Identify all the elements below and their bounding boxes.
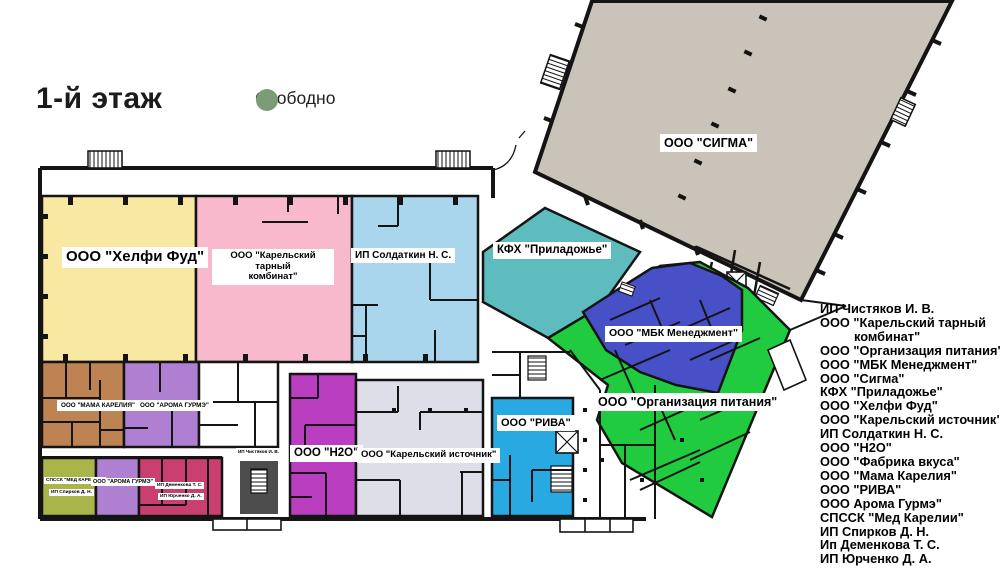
region-label-h2o: ООО "Н2О" (290, 445, 363, 462)
region-label-aroma-2: ООО "АРОМА ГУРМЭ" (91, 478, 155, 486)
floor-plan-page: 1-й этаж Свободно ООО "Хелфи Фуд" ООО "К… (0, 0, 1000, 571)
tenant-list-item: ИП Солдаткин Н. С. (820, 427, 1000, 441)
tenant-list-item: ООО "Карельский источник" (820, 413, 1000, 427)
top-stairs-icons (88, 151, 470, 168)
region-label-mbk: ООО "МБК Менеджмент" (605, 326, 742, 342)
free-legend-dot (255, 88, 279, 112)
region-label-sigma: ООО "СИГМА" (660, 134, 757, 152)
region-label-tarny-line2: комбинат" (214, 272, 332, 283)
tenant-list-item: ООО "МБК Менеджмент" (820, 358, 1000, 372)
region-label-priladozhye: КФХ "Приладожье" (493, 242, 611, 259)
region-label-aroma: ООО "АРОМА ГУРМЭ" (136, 400, 213, 411)
region-soldatkin (352, 196, 478, 362)
tenant-list-item: комбинат" (854, 330, 1000, 344)
region-label-chistyakov: ИП Чистяков И. В. (236, 448, 281, 455)
region-label-spirkov: ИП Спирков Д. Н. (49, 489, 94, 496)
page-title: 1-й этаж (36, 82, 162, 116)
region-label-orgpit: ООО "Организация питания" (594, 393, 781, 411)
region-helfi (42, 196, 196, 362)
region-label-demenkova: ИП Деменкова Т. С. (155, 482, 204, 489)
tenant-list: ИП Чистяков И. В. ООО "Карельский тарный… (820, 302, 1000, 566)
tenant-list-item: СПССК "Мед Карелии" (820, 511, 1000, 525)
region-label-tarny-line1: ООО "Карельский тарный (214, 251, 332, 272)
tenant-list-item: ИП Спирков Д. Н. (820, 525, 1000, 539)
free-legend: Свободно (255, 88, 335, 109)
tenant-list-item: КФХ "Приладожье" (820, 385, 1000, 399)
tenant-list-item: ООО "Сигма" (820, 372, 1000, 386)
stairs-icon (528, 356, 546, 380)
site-boundary-line (493, 131, 525, 170)
region-med-karelii (42, 458, 96, 516)
loading-dock (768, 340, 806, 390)
tenant-list-item: Ип Деменкова Т. С. (820, 538, 1000, 552)
tenant-list-item: ООО Арома Гурмэ" (820, 497, 1000, 511)
region-label-soldatkin: ИП Солдаткин Н. С. (351, 248, 455, 263)
region-label-helfi: ООО "Хелфи Фуд" (62, 247, 208, 268)
tenant-list-item: ООО "Карельский тарный (820, 316, 1000, 330)
region-label-tarny: ООО "Карельский тарный комбинат" (212, 249, 334, 285)
tenant-list-item: ООО "Хелфи Фуд" (820, 399, 1000, 413)
region-aroma-gurme-2 (96, 458, 139, 516)
region-label-istochnik: ООО "Карельский источник" (357, 448, 500, 463)
tenant-list-item: ООО "Н2О" (820, 441, 1000, 455)
tenant-list-item: ИП Чистяков И. В. (820, 302, 1000, 316)
region-label-riva: ООО "РИВА" (497, 415, 575, 431)
tenant-list-item: ООО "Организация питания" (820, 344, 1000, 358)
tenant-list-item: ООО "Мама Карелия" (820, 469, 1000, 483)
tenant-list-item: ООО "РИВА" (820, 483, 1000, 497)
tenant-list-item: ИП Юрченко Д. А. (820, 552, 1000, 566)
region-label-yurchenko: ИП Юрченко Д. А. (158, 493, 204, 500)
stairs-icon (251, 469, 267, 493)
region-label-mama: ООО "МАМА КАРЕЛИЯ" (57, 400, 139, 411)
tenant-list-item: ООО "Фабрика вкуса" (820, 455, 1000, 469)
elevator-icon (556, 431, 578, 453)
